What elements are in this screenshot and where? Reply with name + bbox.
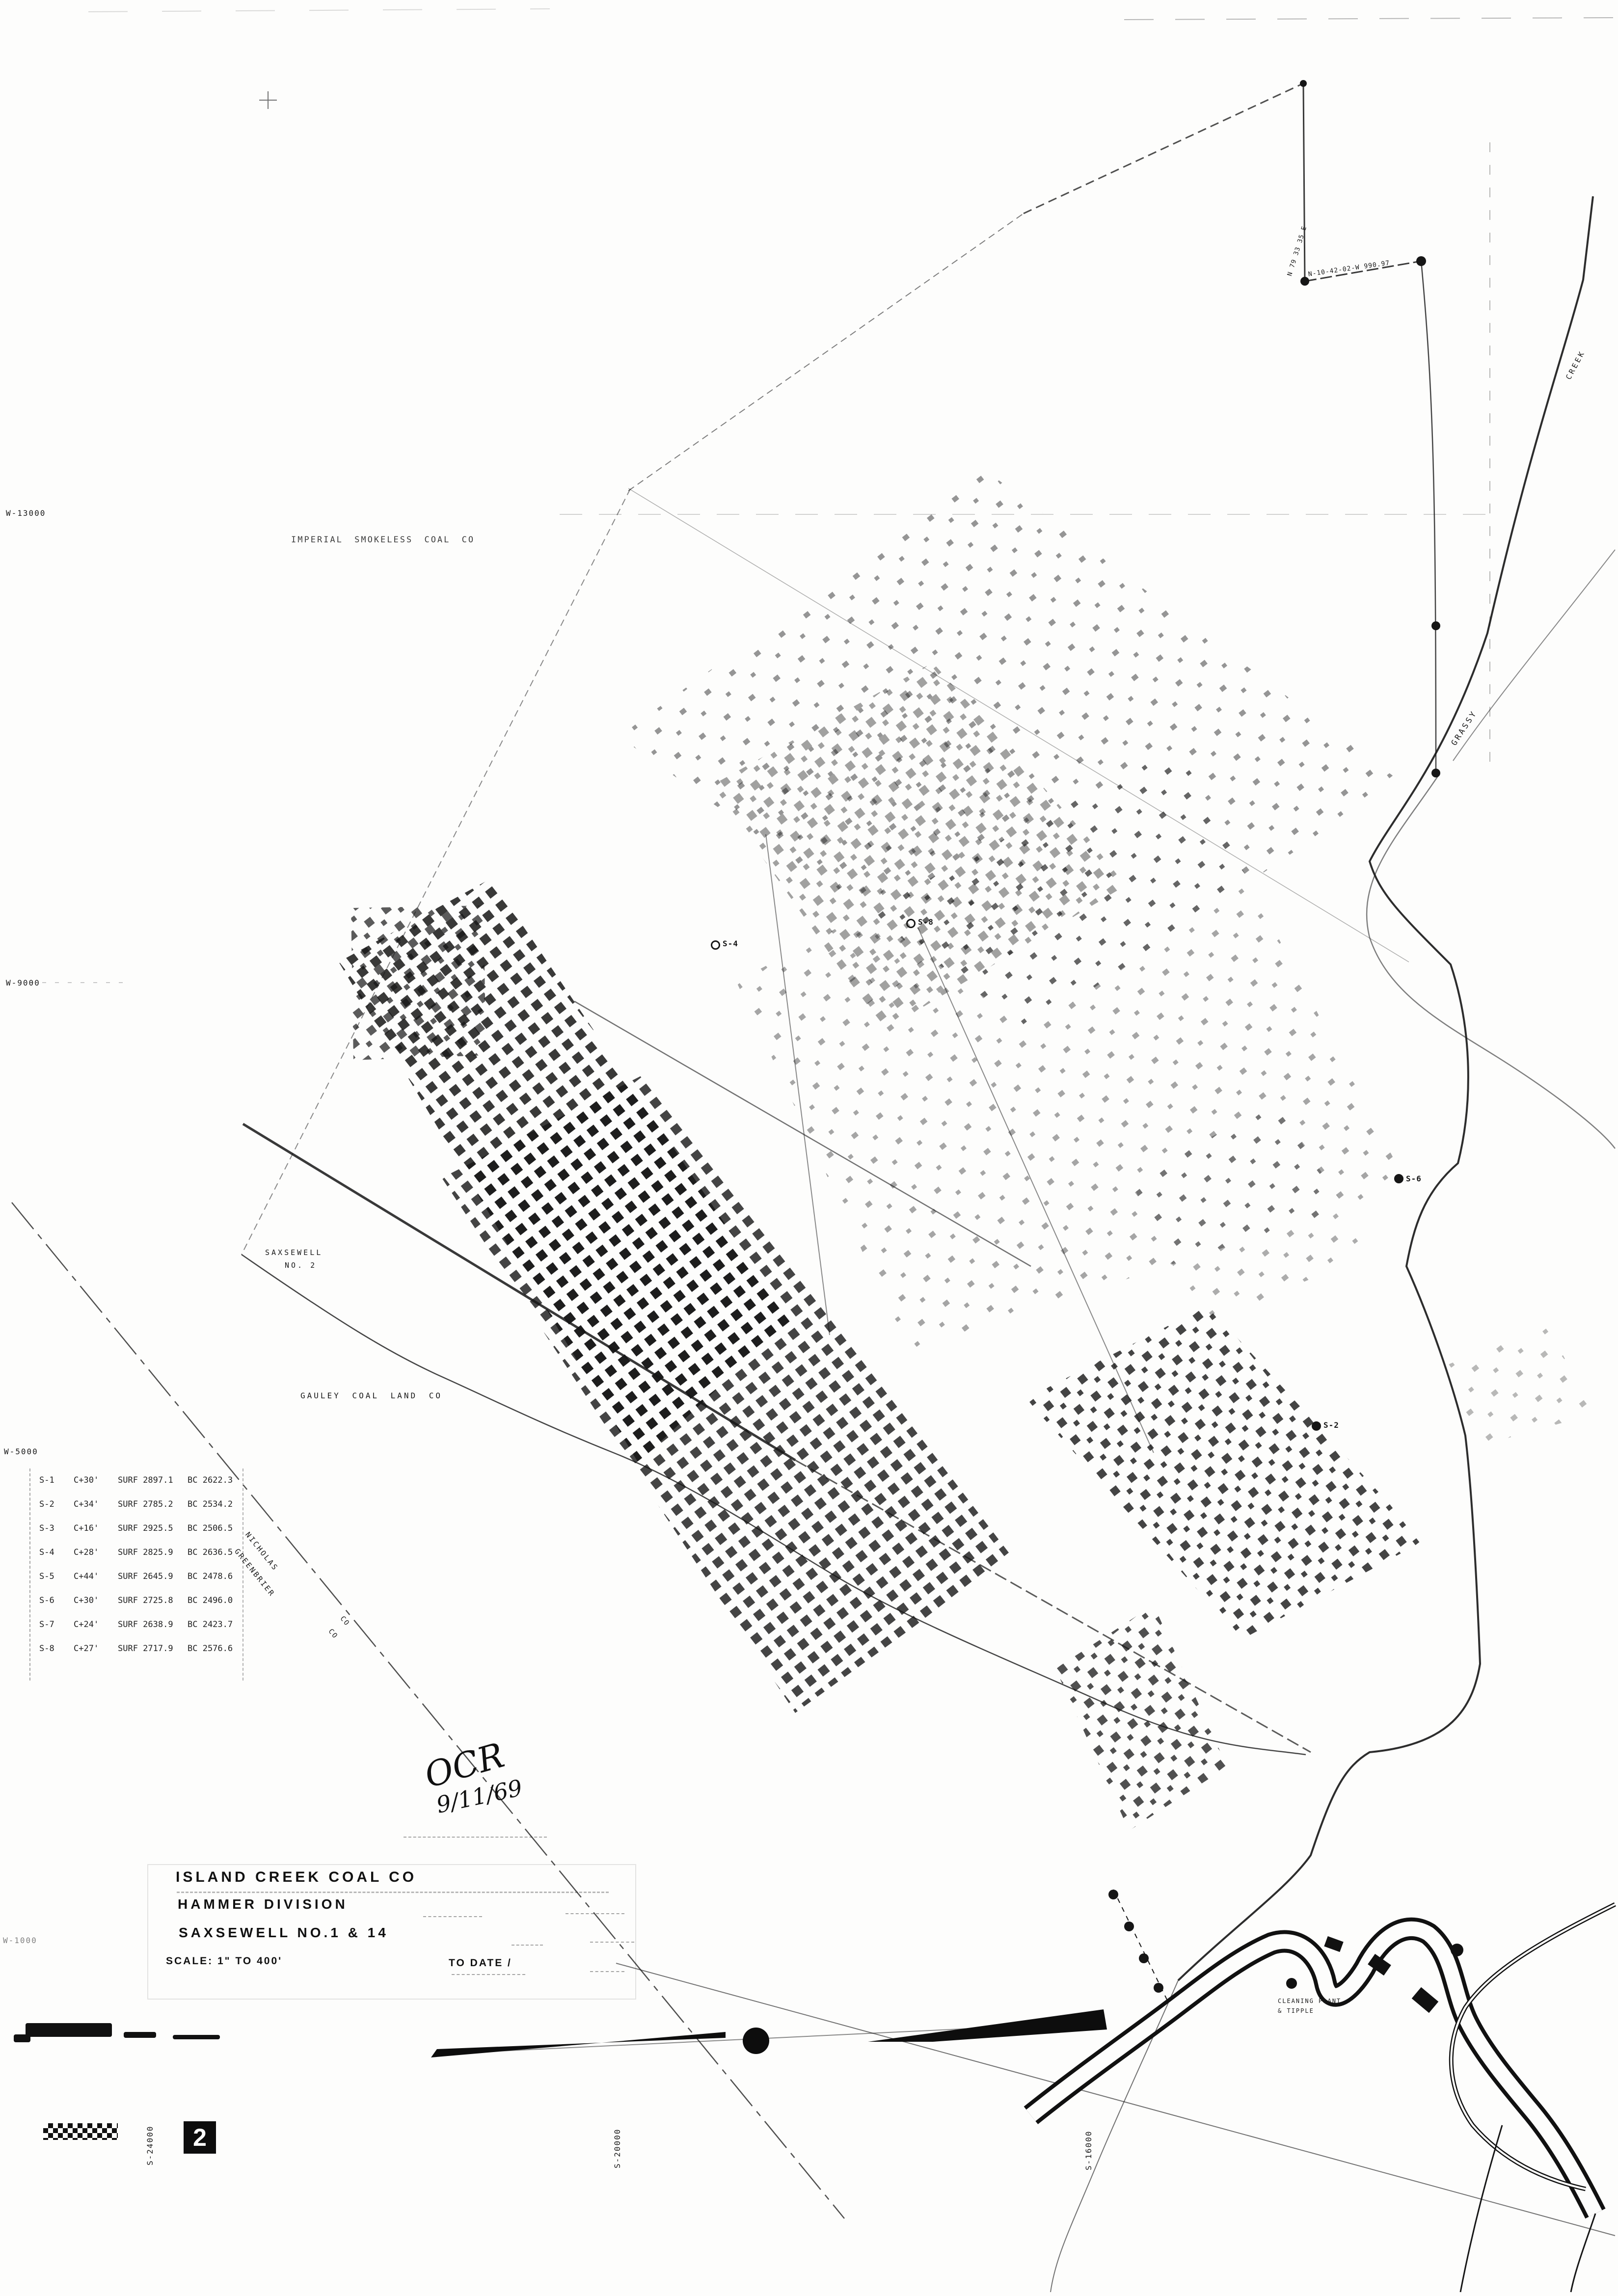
edge-ink-dash	[173, 2035, 220, 2039]
table-row: S-3 C+16' SURF 2925.5 BC 2506.5	[30, 1523, 243, 1543]
north-arrow-assembly	[431, 2009, 1107, 2057]
sheet-number: 2	[193, 2123, 207, 2152]
title-rule-1	[177, 1892, 609, 1893]
cover-cell: C+30'	[74, 1596, 99, 1605]
imperial-smokeless-label: IMPERIAL SMOKELESS COAL CO	[291, 535, 475, 545]
bc-elev-cell: BC 2576.6	[188, 1644, 233, 1654]
title-rule-3b	[590, 1942, 634, 1943]
station-cell: S-4	[39, 1548, 54, 1557]
title-company: ISLAND CREEK COAL CO	[176, 1869, 417, 1886]
borehole-label-s6: S-6	[1406, 1174, 1422, 1183]
saxsewell-no2-label-line1: SAXSEWELL	[265, 1248, 323, 1257]
borehole-label-s4: S-4	[723, 939, 738, 948]
grid-label-s24000: S-24000	[145, 2126, 155, 2165]
river-and-plant	[1031, 1890, 1615, 2292]
title-to-date: TO DATE /	[449, 1957, 512, 1969]
cover-cell: C+24'	[74, 1620, 99, 1629]
cover-cell: C+44'	[74, 1572, 99, 1581]
title-mine: SAXSEWELL NO.1 & 14	[179, 1925, 389, 1941]
bc-elev-cell: BC 2534.2	[188, 1499, 233, 1509]
title-rule-2b	[566, 1913, 624, 1914]
mine-map-sheet: W-13000 W-9000 W-5000 W-1000 S-24000 S-2…	[0, 0, 1618, 2296]
surface-elev-cell: SURF 2725.8	[118, 1596, 173, 1605]
surface-elev-cell: SURF 2638.9	[118, 1620, 173, 1629]
to-date-underline	[452, 1974, 525, 1975]
table-row: S-4 C+28' SURF 2825.9 BC 2636.5	[30, 1548, 243, 1567]
survey-monuments	[1300, 80, 1440, 777]
station-cell: S-2	[39, 1499, 54, 1509]
edge-ink-dash	[14, 2034, 30, 2042]
grid-label-w13000: W-13000	[6, 508, 46, 518]
to-date-fill-dashes	[590, 1971, 624, 1972]
surface-elev-cell: SURF 2825.9	[118, 1548, 173, 1557]
survey-elevation-table: S-1 C+30' SURF 2897.1 BC 2622.3 S-2 C+34…	[29, 1468, 243, 1681]
edge-checker-strip	[43, 2123, 118, 2140]
bc-elev-cell: BC 2506.5	[188, 1523, 233, 1533]
table-row: S-2 C+34' SURF 2785.2 BC 2534.2	[30, 1499, 243, 1519]
table-row: S-5 C+44' SURF 2645.9 BC 2478.6	[30, 1572, 243, 1591]
grid-label-s20000: S-20000	[613, 2129, 622, 2168]
bc-elev-cell: BC 2478.6	[188, 1572, 233, 1581]
mine-workings-texture	[339, 471, 1595, 1831]
borehole-label-s2: S-2	[1323, 1420, 1339, 1430]
cover-cell: C+34'	[74, 1499, 99, 1509]
cover-cell: C+28'	[74, 1548, 99, 1557]
table-row: S-1 C+30' SURF 2897.1 BC 2622.3	[30, 1475, 243, 1495]
title-division: HAMMER DIVISION	[178, 1896, 348, 1912]
surface-elev-cell: SURF 2785.2	[118, 1499, 173, 1509]
station-cell: S-3	[39, 1523, 54, 1533]
cover-cell: C+30'	[74, 1475, 99, 1485]
title-rule-2a	[423, 1916, 482, 1917]
saxsewell-no2-label-line2: NO. 2	[285, 1261, 317, 1270]
surface-elev-cell: SURF 2897.1	[118, 1475, 173, 1485]
borehole-marker-s4	[711, 940, 720, 950]
bc-elev-cell: BC 2496.0	[188, 1596, 233, 1605]
borehole-marker-s8	[906, 919, 916, 928]
bc-elev-cell: BC 2622.3	[188, 1475, 233, 1485]
edge-ink-dash	[124, 2032, 156, 2038]
borehole-label-s8: S-8	[918, 917, 934, 927]
station-cell: S-1	[39, 1475, 54, 1485]
bc-elev-cell: BC 2423.7	[188, 1620, 233, 1629]
station-cell: S-8	[39, 1644, 54, 1654]
borehole-marker-s6	[1394, 1174, 1403, 1183]
table-row: S-6 C+30' SURF 2725.8 BC 2496.0	[30, 1596, 243, 1615]
grid-label-w5000: W-5000	[4, 1447, 38, 1456]
cover-cell: C+27'	[74, 1644, 99, 1654]
gauley-coal-land-label: GAULEY COAL LAND CO	[300, 1391, 442, 1400]
cleaning-plant-label-line1: CLEANING PLANT	[1278, 1998, 1341, 2004]
edge-ink-dash	[26, 2023, 112, 2037]
surface-elev-cell: SURF 2717.9	[118, 1644, 173, 1654]
bc-elev-cell: BC 2636.5	[188, 1548, 233, 1557]
grid-label-s16000: S-16000	[1084, 2131, 1093, 2170]
station-cell: S-6	[39, 1596, 54, 1605]
note-underline-dashes	[404, 1837, 547, 1838]
title-scale: SCALE: 1" TO 400'	[166, 1955, 282, 1967]
surface-elev-cell: SURF 2925.5	[118, 1523, 173, 1533]
station-cell: S-5	[39, 1572, 54, 1581]
station-cell: S-7	[39, 1620, 54, 1629]
title-rule-3a	[512, 1945, 543, 1946]
table-row: S-8 C+27' SURF 2717.9 BC 2576.6	[30, 1644, 243, 1663]
cover-cell: C+16'	[74, 1523, 99, 1533]
surface-elev-cell: SURF 2645.9	[118, 1572, 173, 1581]
grid-label-w1000: W-1000	[3, 1936, 37, 1945]
grid-label-w9000: W-9000	[6, 978, 40, 988]
borehole-marker-s2	[1312, 1421, 1321, 1431]
title-block: ISLAND CREEK COAL CO HAMMER DIVISION SAX…	[147, 1864, 636, 2000]
table-row: S-7 C+24' SURF 2638.9 BC 2423.7	[30, 1620, 243, 1639]
sheet-number-box: 2	[184, 2121, 216, 2154]
cleaning-plant-label-line2: & TIPPLE	[1278, 2007, 1314, 2014]
